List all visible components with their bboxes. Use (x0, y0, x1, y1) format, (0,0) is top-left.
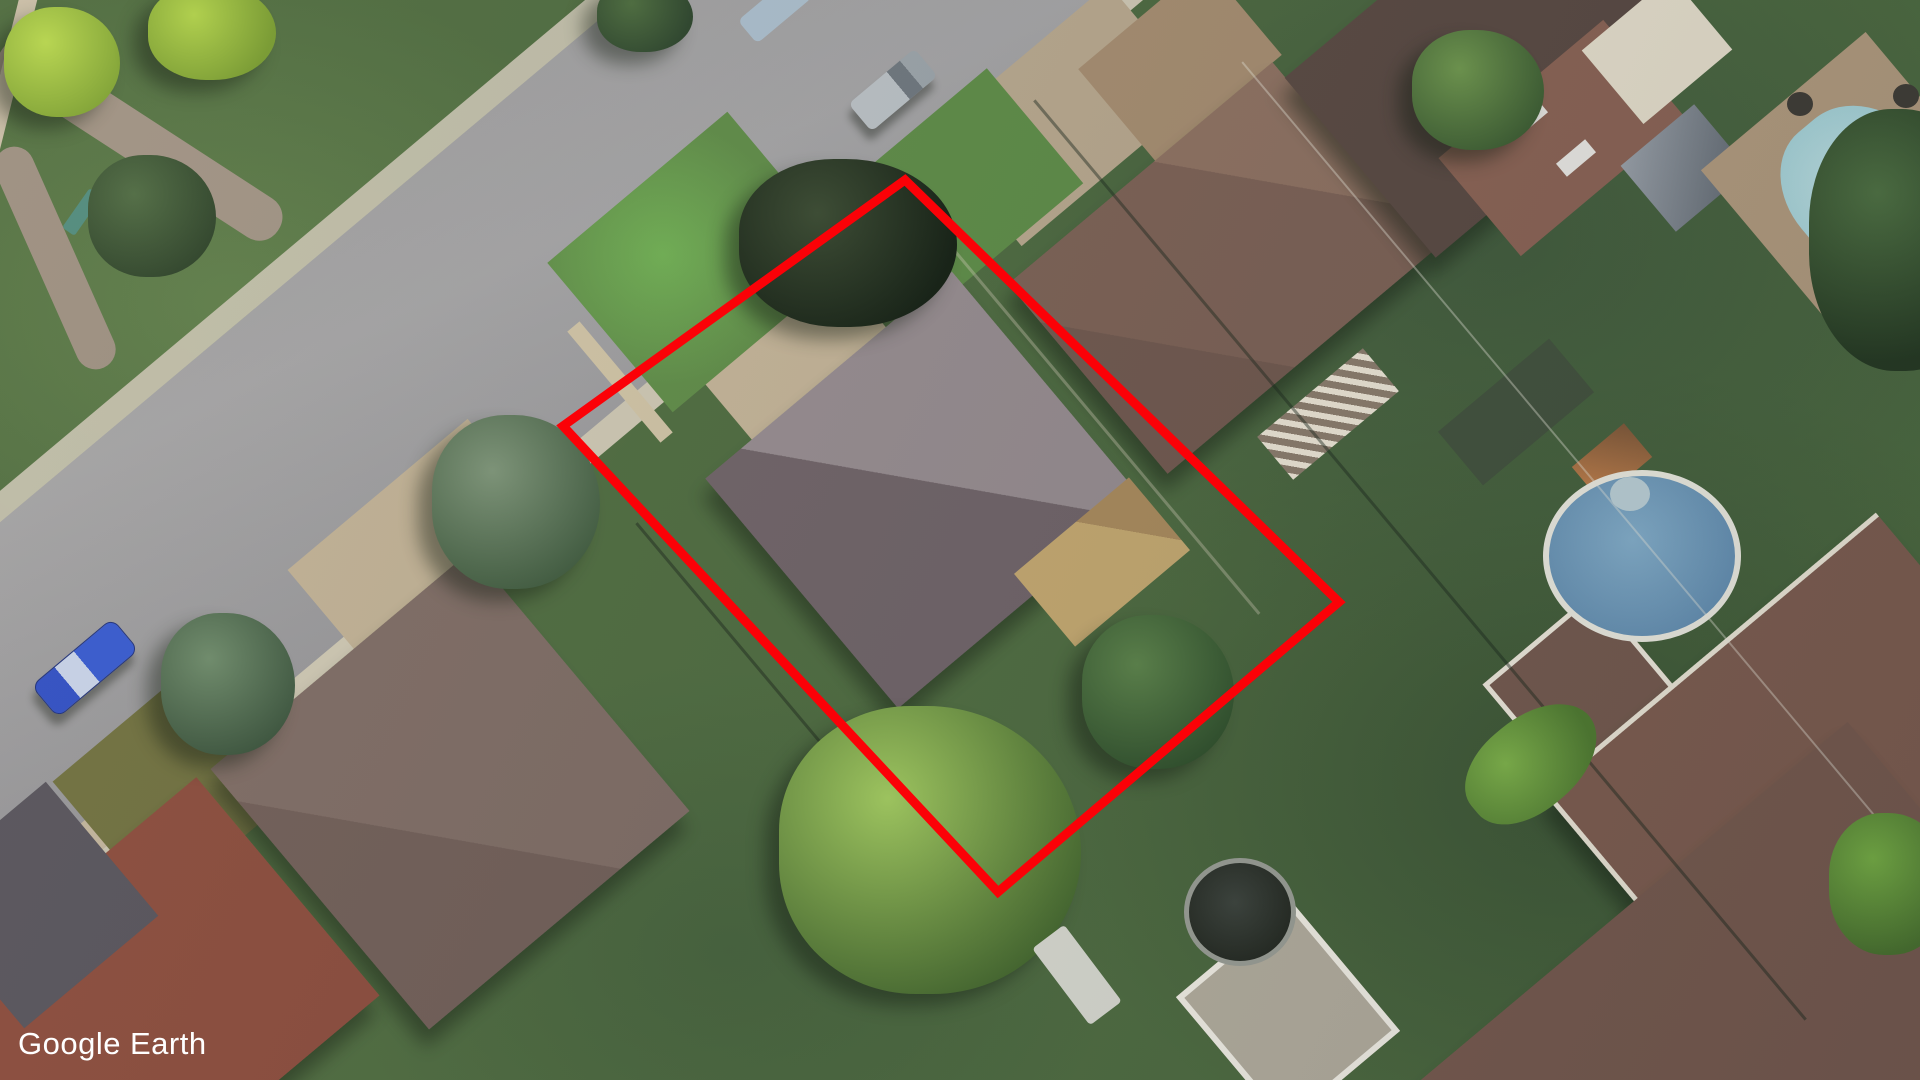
large-dark-tree (739, 159, 957, 327)
watermark-product: Earth (130, 1026, 207, 1062)
tree (4, 7, 120, 117)
watermark-brand: Google (18, 1026, 121, 1062)
patio-shrub (1787, 92, 1813, 116)
watermark: Google Earth (18, 1026, 207, 1062)
park-hedge (88, 155, 216, 277)
tree (1082, 615, 1234, 769)
garden-bed (1438, 339, 1594, 486)
white-trailer (1032, 925, 1122, 1026)
tree (148, 0, 276, 80)
tree (1412, 30, 1544, 150)
bush (1829, 813, 1920, 955)
patio-shrub (1893, 84, 1919, 108)
tree (161, 613, 295, 755)
map-canvas[interactable]: Google Earth (0, 0, 1920, 1080)
trampoline (1184, 858, 1296, 966)
tree (432, 415, 600, 589)
